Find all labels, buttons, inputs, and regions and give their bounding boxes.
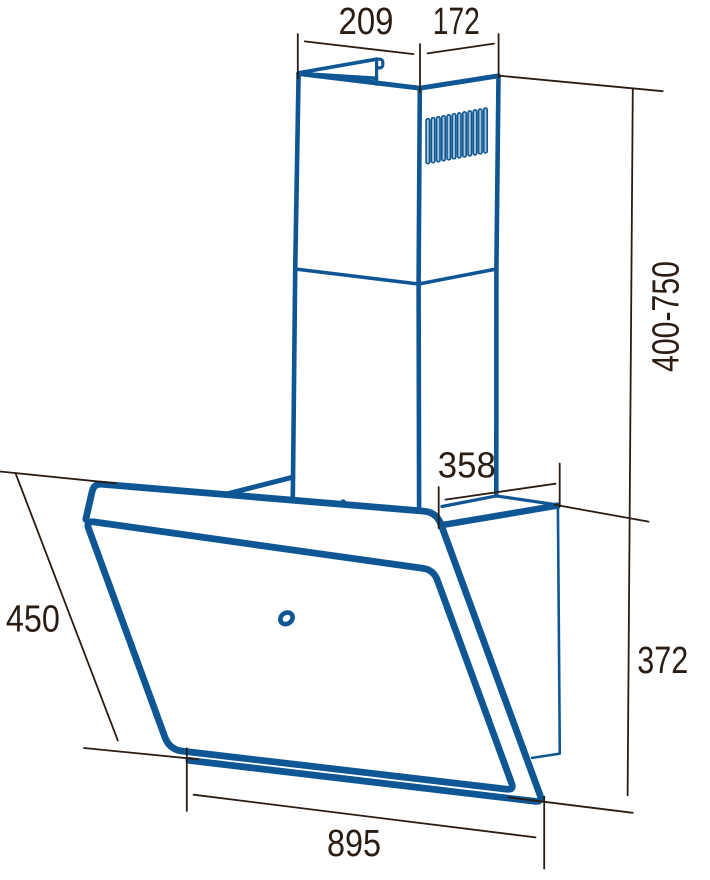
svg-text:895: 895 [327, 823, 381, 865]
svg-text:209: 209 [339, 1, 394, 43]
svg-text:400-750: 400-750 [646, 261, 688, 372]
svg-text:372: 372 [637, 640, 688, 682]
svg-text:358: 358 [438, 445, 496, 486]
svg-text:450: 450 [6, 598, 60, 640]
svg-text:172: 172 [433, 1, 480, 43]
